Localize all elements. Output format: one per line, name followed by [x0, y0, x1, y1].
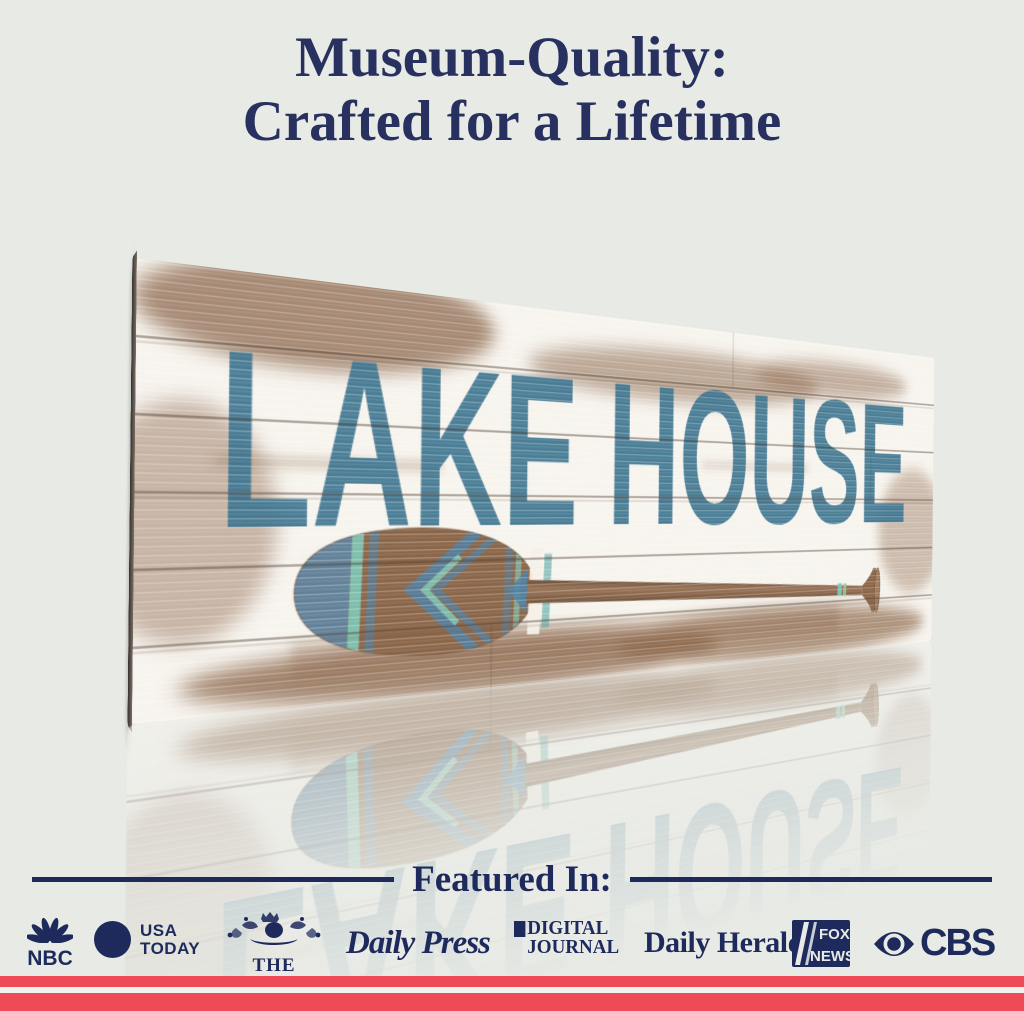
cbs-eye-icon [872, 927, 916, 961]
featured-in-divider: Featured In: [0, 858, 1024, 901]
logo-daily-herald: Daily Herald [644, 926, 804, 960]
logo-daily-press: Daily Press [346, 925, 490, 962]
divider-line-left [32, 877, 394, 882]
fox-news-line1: FOX [819, 926, 850, 943]
usa-today-line2: TODAY [140, 940, 200, 958]
headline-line-1: Museum-Quality: [0, 26, 1024, 90]
logo-fox-news: FOX NEWS [792, 920, 850, 972]
headline-line-2: Crafted for a Lifetime [0, 90, 1024, 154]
digital-journal-square-icon [514, 921, 525, 937]
divider-line-right [630, 877, 992, 882]
logo-digital-journal: DIGITAL JOURNAL [514, 919, 619, 957]
fox-news-line2: NEWS [810, 948, 850, 965]
logo-cbs: CBS [872, 922, 994, 965]
headline: Museum-Quality: Crafted for a Lifetime [0, 26, 1024, 154]
footer-stripe-red-1 [0, 976, 1024, 987]
usa-today-line1: USA [140, 922, 200, 940]
footer-stripes [0, 976, 1024, 1011]
usa-today-circle-icon [94, 921, 131, 958]
cbs-label: CBS [920, 922, 994, 965]
footer-stripe-red-2 [0, 993, 1024, 1011]
nbc-label: NBC [24, 947, 76, 971]
nbc-peacock-icon [27, 916, 73, 943]
fox-news-box-icon: FOX NEWS [792, 920, 850, 967]
page: Museum-Quality: Crafted for a Lifetime [0, 0, 1024, 1011]
digital-journal-line2: JOURNAL [527, 938, 619, 957]
press-logos-row: NBC USA TODAY [0, 905, 1024, 977]
the-times-crest-icon [222, 911, 326, 949]
logo-usa-today: USA TODAY [94, 921, 200, 958]
featured-in-label: Featured In: [412, 858, 612, 901]
logo-nbc: NBC [24, 916, 76, 971]
